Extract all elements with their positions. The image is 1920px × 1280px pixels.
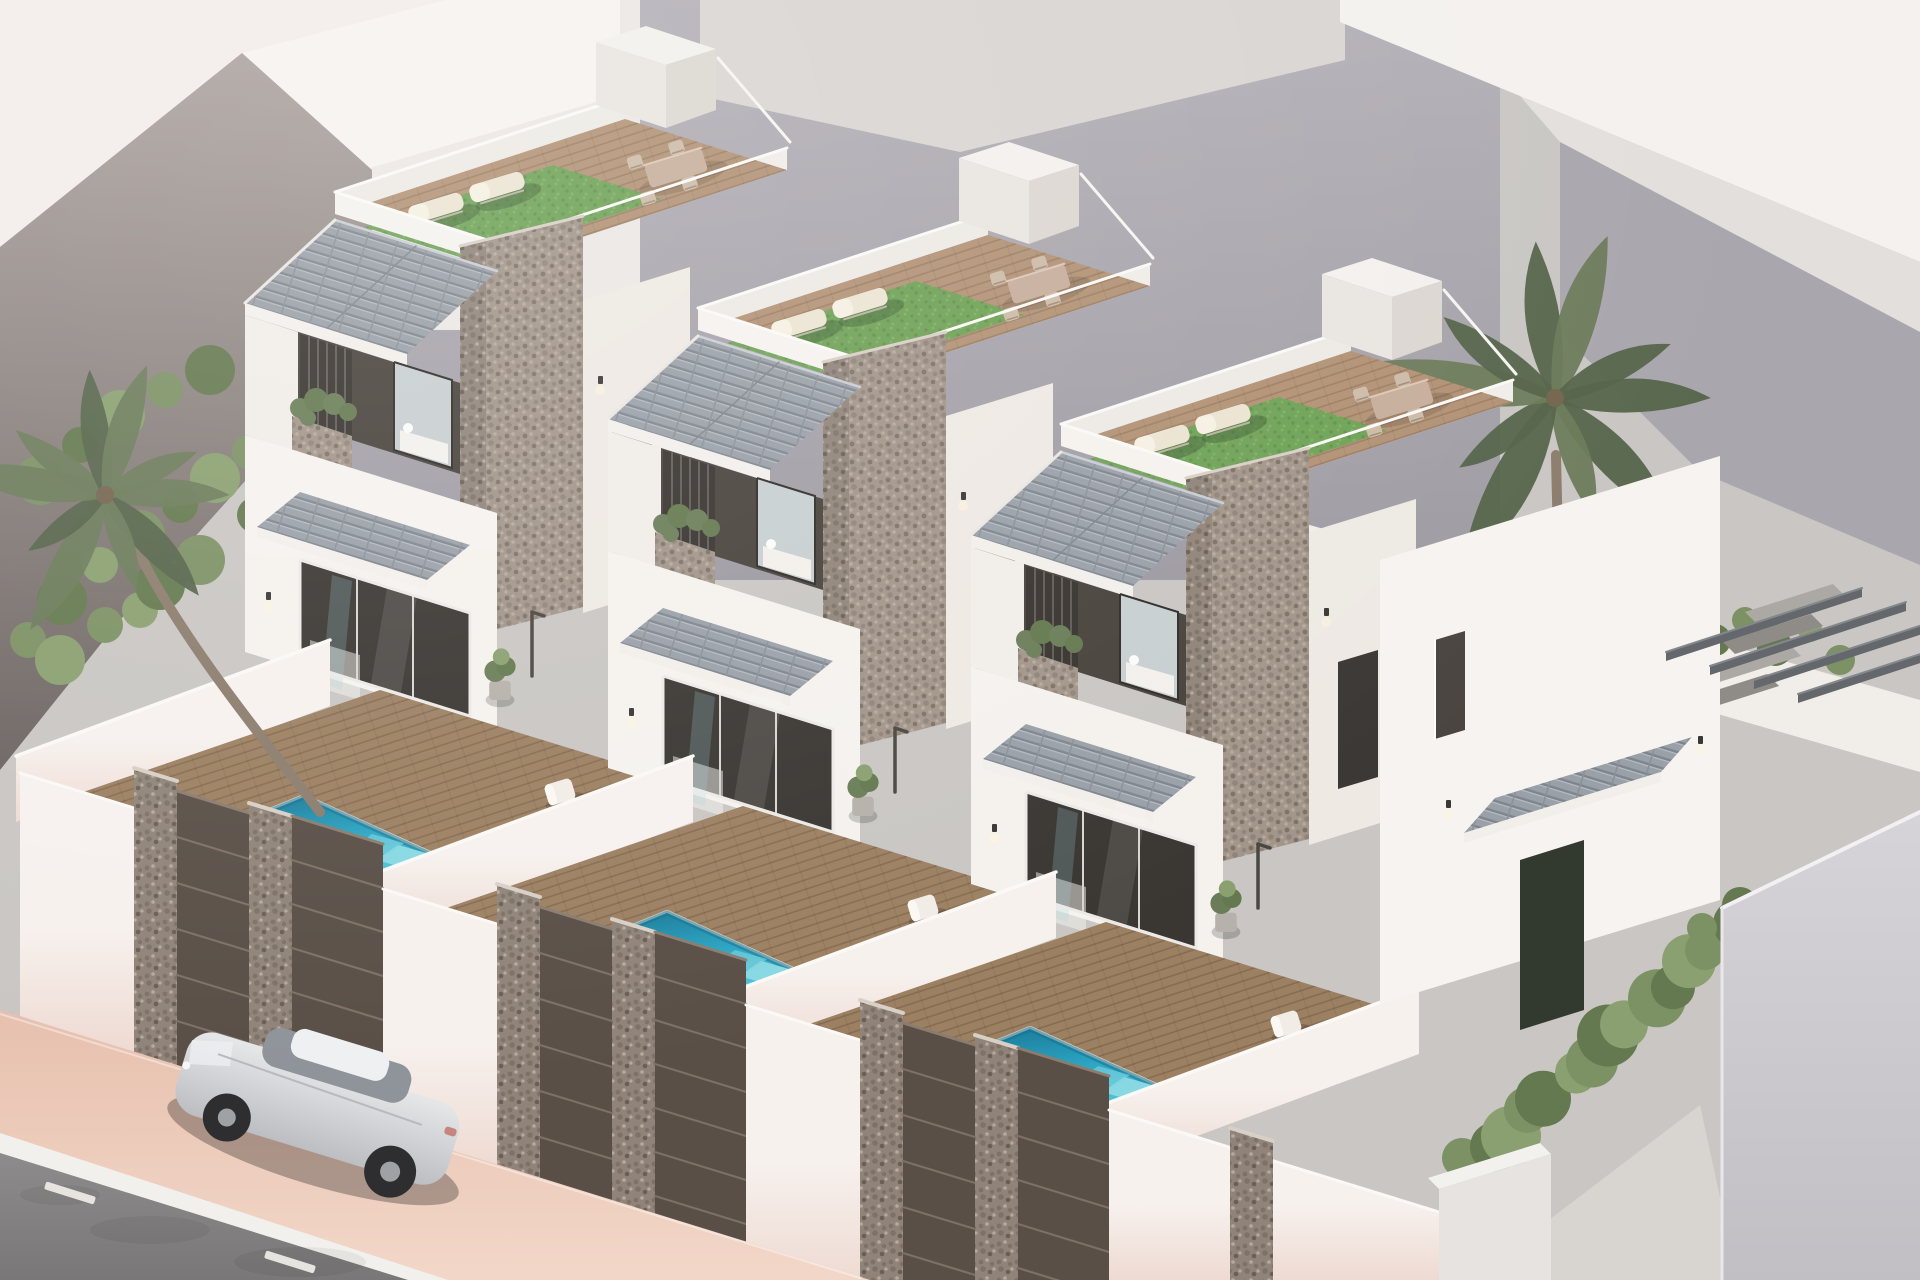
- render-canvas: [0, 0, 1920, 1280]
- sunlight-overlay: [0, 0, 1920, 1280]
- architectural-render: [0, 0, 1920, 1280]
